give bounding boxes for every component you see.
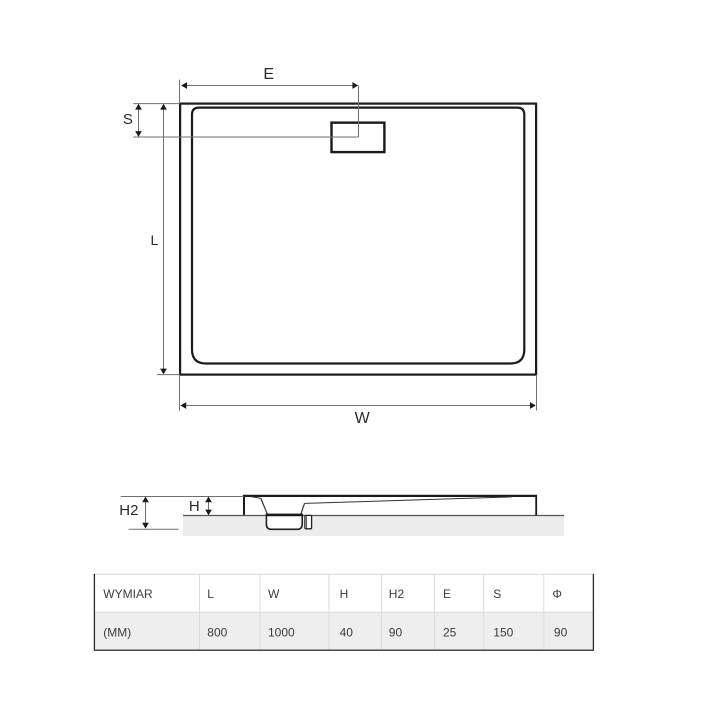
svg-text:H: H xyxy=(189,498,200,515)
svg-text:L: L xyxy=(151,232,159,248)
svg-text:40: 40 xyxy=(340,625,354,639)
svg-text:25: 25 xyxy=(443,625,457,639)
svg-text:H2: H2 xyxy=(119,502,138,519)
svg-text:Φ: Φ xyxy=(552,587,562,601)
svg-text:1000: 1000 xyxy=(268,625,295,639)
svg-text:90: 90 xyxy=(389,625,403,639)
svg-text:800: 800 xyxy=(207,625,227,639)
svg-text:(MM): (MM) xyxy=(103,625,131,639)
svg-text:S: S xyxy=(123,111,133,128)
svg-text:W: W xyxy=(268,587,280,601)
svg-text:L: L xyxy=(207,587,214,601)
svg-text:WYMIAR: WYMIAR xyxy=(103,587,153,601)
svg-text:90: 90 xyxy=(554,625,568,639)
svg-text:H2: H2 xyxy=(389,587,405,601)
svg-text:H: H xyxy=(340,587,349,601)
svg-text:150: 150 xyxy=(493,625,513,639)
svg-text:W: W xyxy=(355,410,371,427)
svg-text:E: E xyxy=(263,66,274,83)
svg-text:E: E xyxy=(443,587,451,601)
svg-text:S: S xyxy=(493,587,501,601)
